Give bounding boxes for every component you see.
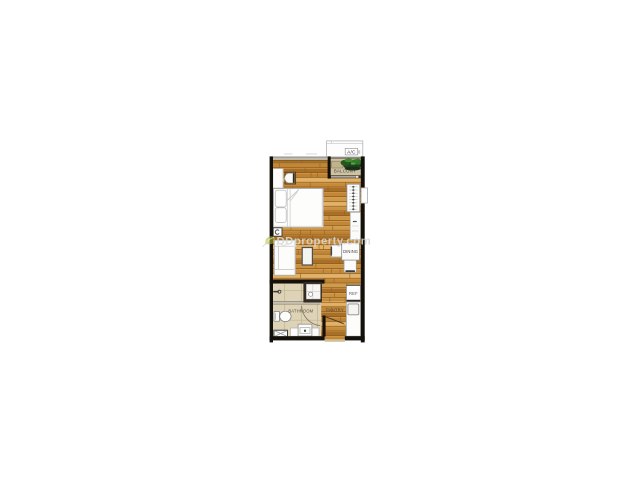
- svg-text:A/C: A/C: [347, 150, 356, 156]
- svg-text:REF: REF: [349, 291, 358, 296]
- svg-text:PANTRY: PANTRY: [326, 308, 344, 313]
- svg-text:BALCONY: BALCONY: [334, 169, 356, 174]
- svg-text:DDproperty.com: DDproperty.com: [277, 235, 372, 247]
- svg-text:DINING: DINING: [343, 249, 358, 254]
- svg-text:BATHROOM: BATHROOM: [288, 308, 313, 313]
